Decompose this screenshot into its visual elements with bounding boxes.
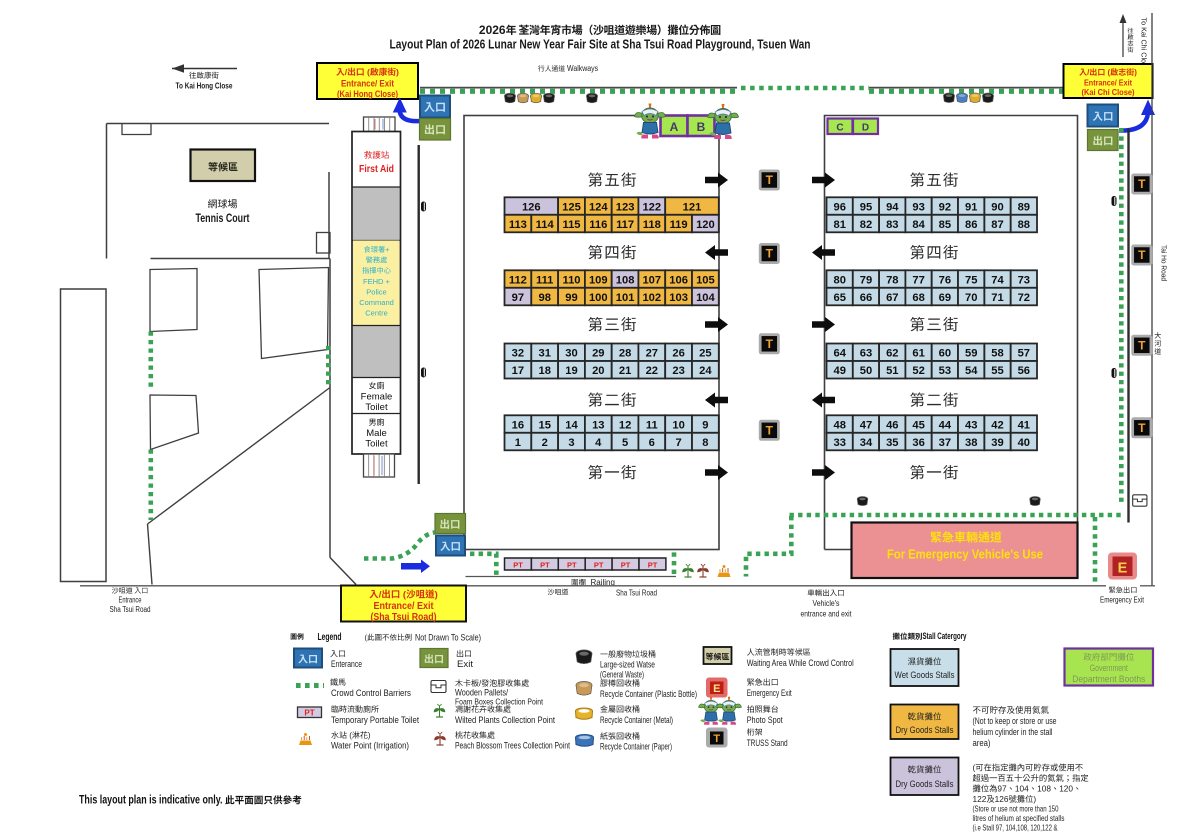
svg-text:42: 42: [991, 420, 1003, 432]
svg-text:47: 47: [860, 420, 872, 432]
svg-text:110: 110: [562, 275, 580, 287]
svg-text:25: 25: [699, 348, 711, 360]
svg-text:53: 53: [939, 365, 951, 377]
svg-text:57: 57: [1018, 348, 1030, 360]
svg-text:Government: Government: [1090, 663, 1128, 674]
svg-text:79: 79: [860, 275, 872, 287]
svg-text:13: 13: [592, 420, 604, 432]
svg-text:Wilted Plants Collection Point: Wilted Plants Collection Point: [455, 715, 555, 726]
svg-text:56: 56: [1018, 365, 1030, 377]
svg-text:40: 40: [1018, 437, 1030, 449]
svg-text:Entrance/ Exit: Entrance/ Exit: [1084, 78, 1132, 88]
svg-text:27: 27: [646, 348, 658, 360]
svg-text:85: 85: [939, 219, 951, 231]
svg-text:T: T: [1138, 248, 1146, 262]
svg-text:113: 113: [509, 219, 527, 231]
svg-text:): ): [1033, 794, 1036, 804]
svg-text:Photo Spot: Photo Spot: [747, 715, 783, 726]
svg-text:Entrance/ Exit: Entrance/ Exit: [341, 79, 395, 90]
svg-text:Stall Catergory: Stall Catergory: [923, 631, 967, 641]
svg-text:PT: PT: [304, 709, 314, 718]
svg-text:1: 1: [515, 437, 521, 449]
svg-text:E: E: [713, 683, 720, 695]
svg-text:Not Drawn To Scale): Not Drawn To Scale): [415, 633, 481, 644]
svg-text:80: 80: [833, 275, 845, 287]
svg-text:74: 74: [991, 275, 1004, 287]
svg-text:Centre: Centre: [365, 309, 388, 318]
svg-text:126: 126: [522, 202, 541, 214]
svg-text:69: 69: [939, 292, 951, 304]
svg-text:2: 2: [542, 437, 548, 449]
svg-text:Water Point (Irrigation): Water Point (Irrigation): [331, 741, 409, 752]
svg-text:81: 81: [833, 219, 845, 231]
svg-text:Sha Tsui Road: Sha Tsui Road: [110, 605, 151, 614]
svg-text:75: 75: [965, 275, 977, 287]
svg-text:34: 34: [860, 437, 873, 449]
svg-text:102: 102: [642, 292, 661, 304]
svg-text:36: 36: [912, 437, 924, 449]
svg-text:15: 15: [538, 420, 550, 432]
svg-text:PT: PT: [540, 561, 550, 570]
svg-text:Enterance: Enterance: [331, 659, 362, 670]
svg-text:19: 19: [565, 365, 577, 377]
svg-text:126: 126: [995, 794, 1009, 804]
svg-text:): ): [1134, 68, 1137, 77]
svg-text:E: E: [1118, 561, 1128, 577]
svg-text:50: 50: [860, 365, 872, 377]
svg-text:105: 105: [696, 275, 715, 287]
svg-text:C: C: [836, 123, 843, 134]
svg-text:): ): [435, 590, 438, 601]
svg-text:PT: PT: [648, 561, 658, 570]
svg-text:Foam Boxes Collection Point: Foam Boxes Collection Point: [455, 697, 544, 707]
svg-text:70: 70: [965, 292, 977, 304]
svg-text:For Emergency Vehicle's Use: For Emergency Vehicle's Use: [887, 547, 1043, 562]
svg-text:3: 3: [568, 437, 574, 449]
svg-text:17: 17: [512, 365, 524, 377]
svg-text:120: 120: [1059, 784, 1073, 794]
svg-text:39: 39: [991, 437, 1003, 449]
svg-text:114: 114: [536, 219, 555, 231]
svg-text:63: 63: [860, 348, 872, 360]
svg-text:99: 99: [565, 292, 577, 304]
svg-text:): ): [368, 731, 371, 740]
svg-text:116: 116: [589, 219, 607, 231]
svg-text:Entrance: Entrance: [119, 596, 142, 605]
svg-text:T: T: [1138, 339, 1146, 353]
svg-text:litres of helium at specified: litres of helium at specified stalls: [973, 813, 1065, 823]
svg-text:Walkways: Walkways: [565, 64, 598, 73]
svg-text:26: 26: [672, 348, 684, 360]
svg-text:Recycle Container (Metal): Recycle Container (Metal): [600, 715, 673, 726]
svg-text:108: 108: [616, 275, 635, 287]
svg-text:100: 100: [589, 292, 608, 304]
svg-text:51: 51: [886, 365, 898, 377]
svg-text:6: 6: [649, 437, 655, 449]
svg-text:7: 7: [675, 437, 681, 449]
svg-text:55: 55: [991, 365, 1003, 377]
svg-text:Police: Police: [366, 288, 386, 297]
svg-text:8: 8: [702, 437, 708, 449]
svg-text:): ): [396, 67, 399, 77]
svg-text:41: 41: [1018, 420, 1030, 432]
svg-text:91: 91: [965, 202, 977, 214]
svg-text:area): area): [973, 738, 991, 748]
svg-text:93: 93: [912, 202, 924, 214]
svg-text:119: 119: [670, 219, 688, 231]
svg-text:14: 14: [565, 420, 578, 432]
svg-text:Legend: Legend: [318, 632, 342, 643]
svg-text:45: 45: [912, 420, 924, 432]
svg-text:87: 87: [991, 219, 1003, 231]
svg-text:71: 71: [991, 292, 1003, 304]
svg-text:Emergency Exit: Emergency Exit: [747, 688, 792, 699]
svg-text:To Kai Chi Close: To Kai Chi Close: [1140, 18, 1149, 71]
svg-text:4: 4: [595, 437, 602, 449]
svg-text:33: 33: [833, 437, 845, 449]
svg-text:To Kai Hong Close: To Kai Hong Close: [176, 81, 233, 91]
svg-text:62: 62: [886, 348, 898, 360]
svg-text:82: 82: [860, 219, 872, 231]
svg-text:(i.e Stall 97, 104,108, 120,12: (i.e Stall 97, 104,108, 120,122 &: [973, 823, 1058, 833]
svg-text:68: 68: [912, 292, 924, 304]
svg-text:FEHD +: FEHD +: [363, 277, 391, 286]
svg-text:28: 28: [619, 348, 631, 360]
svg-text:(Sha Tsui Road): (Sha Tsui Road): [371, 611, 437, 623]
svg-text:101: 101: [616, 292, 635, 304]
svg-text:37: 37: [939, 437, 951, 449]
svg-text:Emergency Exit: Emergency Exit: [1100, 595, 1144, 605]
svg-text:98: 98: [538, 292, 550, 304]
svg-text:This layout plan is indicative: This layout plan is indicative only.: [79, 795, 225, 807]
svg-text:entrance and exit: entrance and exit: [801, 609, 852, 619]
svg-text:18: 18: [538, 365, 550, 377]
svg-text:PT: PT: [513, 561, 523, 570]
svg-text:58: 58: [991, 348, 1003, 360]
svg-text:Dry Goods Stalls: Dry Goods Stalls: [896, 725, 954, 736]
svg-text:125: 125: [562, 202, 581, 214]
svg-text:(General Waste): (General Waste): [600, 670, 644, 680]
svg-text:Layout Plan of 2026 Lunar New: Layout Plan of 2026 Lunar New Year Fair …: [390, 37, 811, 52]
svg-text:Toilet: Toilet: [365, 402, 388, 413]
svg-text:Command: Command: [359, 298, 394, 307]
svg-text:Wet Goods Stalls: Wet Goods Stalls: [895, 670, 955, 681]
svg-text:54: 54: [965, 365, 978, 377]
svg-text:61: 61: [912, 348, 924, 360]
svg-text:Recycle Container (Paper): Recycle Container (Paper): [600, 742, 672, 753]
svg-text:66: 66: [860, 292, 872, 304]
svg-text:115: 115: [562, 219, 580, 231]
svg-text:94: 94: [886, 202, 899, 214]
svg-text:65: 65: [833, 292, 845, 304]
svg-text:123: 123: [616, 202, 635, 214]
svg-text:20: 20: [592, 365, 604, 377]
svg-text:(: (: [347, 731, 352, 740]
svg-text:21: 21: [619, 365, 631, 377]
svg-text:T: T: [766, 424, 774, 438]
svg-text:67: 67: [886, 292, 898, 304]
svg-text:Vehicle's: Vehicle's: [813, 598, 840, 608]
svg-text:D: D: [862, 123, 869, 134]
svg-text:38: 38: [965, 437, 977, 449]
svg-text:T: T: [766, 247, 774, 261]
svg-text:(Kai Chi Close): (Kai Chi Close): [1082, 87, 1135, 97]
svg-text:89: 89: [1018, 202, 1030, 214]
svg-text:TRUSS Stand: TRUSS Stand: [747, 738, 788, 749]
svg-text:109: 109: [589, 275, 608, 287]
svg-text:First Aid: First Aid: [359, 163, 394, 175]
svg-text:(: (: [400, 590, 407, 601]
svg-text:Tai Ho Road: Tai Ho Road: [1160, 245, 1169, 281]
svg-text:64: 64: [833, 348, 846, 360]
svg-text:T: T: [713, 733, 720, 745]
svg-text:Tennis Court: Tennis Court: [196, 211, 250, 225]
svg-text:44: 44: [939, 420, 952, 432]
svg-text:Recycle Container (Plastic Bot: Recycle Container (Plastic Bottle): [600, 689, 697, 700]
svg-text:2026: 2026: [479, 23, 506, 37]
svg-text:124: 124: [589, 202, 608, 214]
svg-text:59: 59: [965, 348, 977, 360]
svg-text:22: 22: [646, 365, 658, 377]
svg-text:24: 24: [699, 365, 712, 377]
svg-text:Female: Female: [361, 392, 393, 403]
svg-text:120: 120: [696, 219, 715, 231]
svg-text:/: /: [379, 590, 382, 601]
svg-text:12: 12: [619, 420, 631, 432]
svg-text:112: 112: [509, 275, 527, 287]
svg-text:(: (: [1105, 68, 1110, 77]
svg-text:5: 5: [622, 437, 628, 449]
svg-text:29: 29: [592, 348, 604, 360]
svg-text:A: A: [670, 120, 679, 134]
svg-text:84: 84: [912, 219, 925, 231]
svg-text:Dry Goods Stalls: Dry Goods Stalls: [896, 779, 954, 790]
svg-text:(: (: [973, 763, 976, 773]
svg-text:Toilet: Toilet: [365, 439, 388, 450]
svg-text:Male: Male: [366, 428, 387, 439]
svg-text:96: 96: [833, 202, 845, 214]
svg-text:T: T: [1138, 177, 1146, 191]
svg-text:9: 9: [702, 420, 708, 432]
svg-text:43: 43: [965, 420, 977, 432]
svg-text:T: T: [766, 173, 774, 187]
svg-text:103: 103: [669, 292, 688, 304]
svg-text:(: (: [365, 67, 370, 77]
svg-text:16: 16: [512, 420, 524, 432]
svg-text:106: 106: [669, 275, 688, 287]
svg-text:95: 95: [860, 202, 872, 214]
svg-text:PT: PT: [621, 561, 631, 570]
svg-text:97: 97: [512, 292, 524, 304]
svg-text:122: 122: [973, 794, 987, 804]
svg-text:104: 104: [1015, 784, 1029, 794]
svg-text:46: 46: [886, 420, 898, 432]
svg-text:(Not to keep or store or use: (Not to keep or store or use: [973, 716, 1057, 726]
svg-text:Sha Tsui Road: Sha Tsui Road: [616, 588, 657, 598]
svg-text:T: T: [766, 337, 774, 351]
svg-text:31: 31: [538, 348, 550, 360]
svg-text:+: +: [385, 245, 389, 254]
svg-text:10: 10: [672, 420, 684, 432]
svg-text:PT: PT: [594, 561, 604, 570]
svg-text:86: 86: [965, 219, 977, 231]
svg-text:104: 104: [696, 292, 715, 304]
svg-text:49: 49: [833, 365, 845, 377]
svg-text:108: 108: [1037, 784, 1051, 794]
svg-text:122: 122: [642, 202, 661, 214]
svg-text:83: 83: [886, 219, 898, 231]
svg-text:60: 60: [939, 348, 951, 360]
svg-text:T: T: [1138, 421, 1146, 435]
svg-text:PT: PT: [567, 561, 577, 570]
svg-text:90: 90: [991, 202, 1003, 214]
svg-text:76: 76: [939, 275, 951, 287]
svg-text:117: 117: [616, 219, 634, 231]
svg-text:B: B: [697, 120, 706, 134]
svg-text:73: 73: [1018, 275, 1030, 287]
svg-text:helium cylinder in the stall: helium cylinder in the stall: [973, 727, 1053, 737]
svg-text:Temporary Portable Toilet: Temporary Portable Toilet: [331, 715, 419, 726]
svg-text:Waiting Area While Crowd Contr: Waiting Area While Crowd Control: [747, 658, 854, 669]
svg-text:Crowd Control Barriers: Crowd Control Barriers: [331, 688, 411, 699]
svg-text:35: 35: [886, 437, 898, 449]
svg-text:30: 30: [565, 348, 577, 360]
svg-text:11: 11: [646, 420, 658, 432]
svg-text:Exit: Exit: [457, 659, 473, 670]
svg-text:52: 52: [912, 365, 924, 377]
svg-text:88: 88: [1018, 219, 1030, 231]
svg-text:32: 32: [512, 348, 524, 360]
svg-text:107: 107: [642, 275, 661, 287]
svg-text:121: 121: [683, 202, 702, 214]
svg-text:111: 111: [536, 275, 553, 287]
svg-text:Peach Blossom Trees Collection: Peach Blossom Trees Collection Point: [455, 741, 570, 752]
svg-text:72: 72: [1018, 292, 1030, 304]
svg-text:118: 118: [643, 219, 661, 231]
svg-text:(Store or use not more than 15: (Store or use not more than 150: [973, 804, 1059, 814]
svg-text:78: 78: [886, 275, 898, 287]
svg-text:(Kai Hong Close): (Kai Hong Close): [337, 89, 398, 100]
svg-text:92: 92: [939, 202, 951, 214]
svg-text:48: 48: [833, 420, 845, 432]
svg-text:77: 77: [912, 275, 924, 287]
svg-text:97: 97: [997, 784, 1007, 794]
svg-text:Department Booths: Department Booths: [1072, 674, 1145, 685]
svg-text:23: 23: [672, 365, 684, 377]
